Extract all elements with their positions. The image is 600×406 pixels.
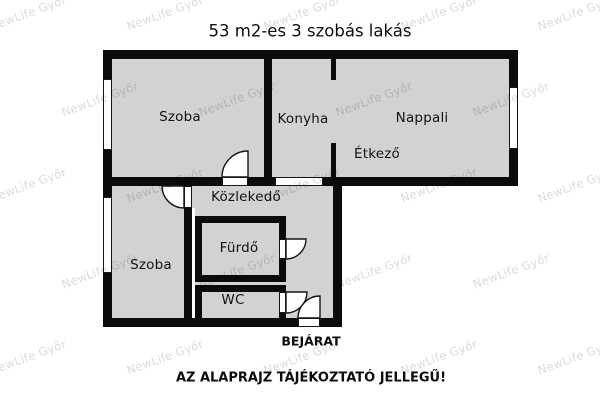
watermark-text: NewLife Győr	[471, 251, 551, 292]
wall-exterior-top	[103, 50, 518, 59]
wall-wc-top	[195, 285, 286, 292]
room-label-konyha: Konyha	[277, 111, 328, 127]
wall-bathroom-bottom	[195, 275, 286, 282]
watermark-text: NewLife Győr	[334, 251, 414, 292]
door-opening-wc	[279, 292, 286, 313]
page-title: 53 m2-es 3 szobás lakás	[209, 22, 412, 41]
wall-exterior-right-lower	[333, 186, 342, 327]
room-label-szoba-upper: Szoba	[159, 109, 201, 125]
watermark-text: NewLife Győr	[536, 0, 600, 33]
window-szoba-upper	[103, 79, 112, 150]
watermark-text: NewLife Győr	[0, 165, 68, 206]
wall-szoba-konyha	[264, 59, 272, 177]
wall-bathroom-top	[195, 216, 286, 223]
passage-opening-konyha	[275, 177, 323, 186]
window-nappali	[509, 87, 518, 149]
floor-plan-page: 53 m2-es 3 szobás lakás Szoba Konyha	[0, 0, 600, 406]
room-label-etkezo: Étkező	[354, 146, 400, 162]
window-szoba-lower	[103, 197, 112, 273]
watermark-text: NewLife Győr	[536, 337, 600, 378]
door-opening-bathroom	[279, 239, 286, 259]
room-label-wc: WC	[221, 292, 244, 308]
wall-konyha-nappali-stub-top	[331, 59, 336, 80]
wall-bathroom-left	[195, 216, 202, 282]
watermark-text: NewLife Győr	[125, 0, 205, 33]
watermark-text: NewLife Győr	[536, 165, 600, 206]
door-opening-szoba-upper	[222, 177, 248, 186]
watermark-text: NewLife Győr	[0, 0, 68, 33]
room-label-szoba-lower: Szoba	[130, 257, 172, 273]
room-label-nappali: Nappali	[396, 110, 449, 126]
wall-konyha-nappali-stub-bottom	[331, 143, 336, 177]
door-opening-entrance	[298, 318, 320, 327]
watermark-text: NewLife Győr	[0, 337, 68, 378]
entrance-label: BEJÁRAT	[281, 334, 340, 349]
room-label-kozlekedo: Közlekedő	[211, 189, 281, 205]
door-opening-szoba-lower	[184, 186, 192, 208]
room-label-furdo: Fürdő	[220, 240, 259, 256]
disclaimer-text: AZ ALAPRAJZ TÁJÉKOZTATÓ JELLEGŰ!	[176, 371, 446, 386]
